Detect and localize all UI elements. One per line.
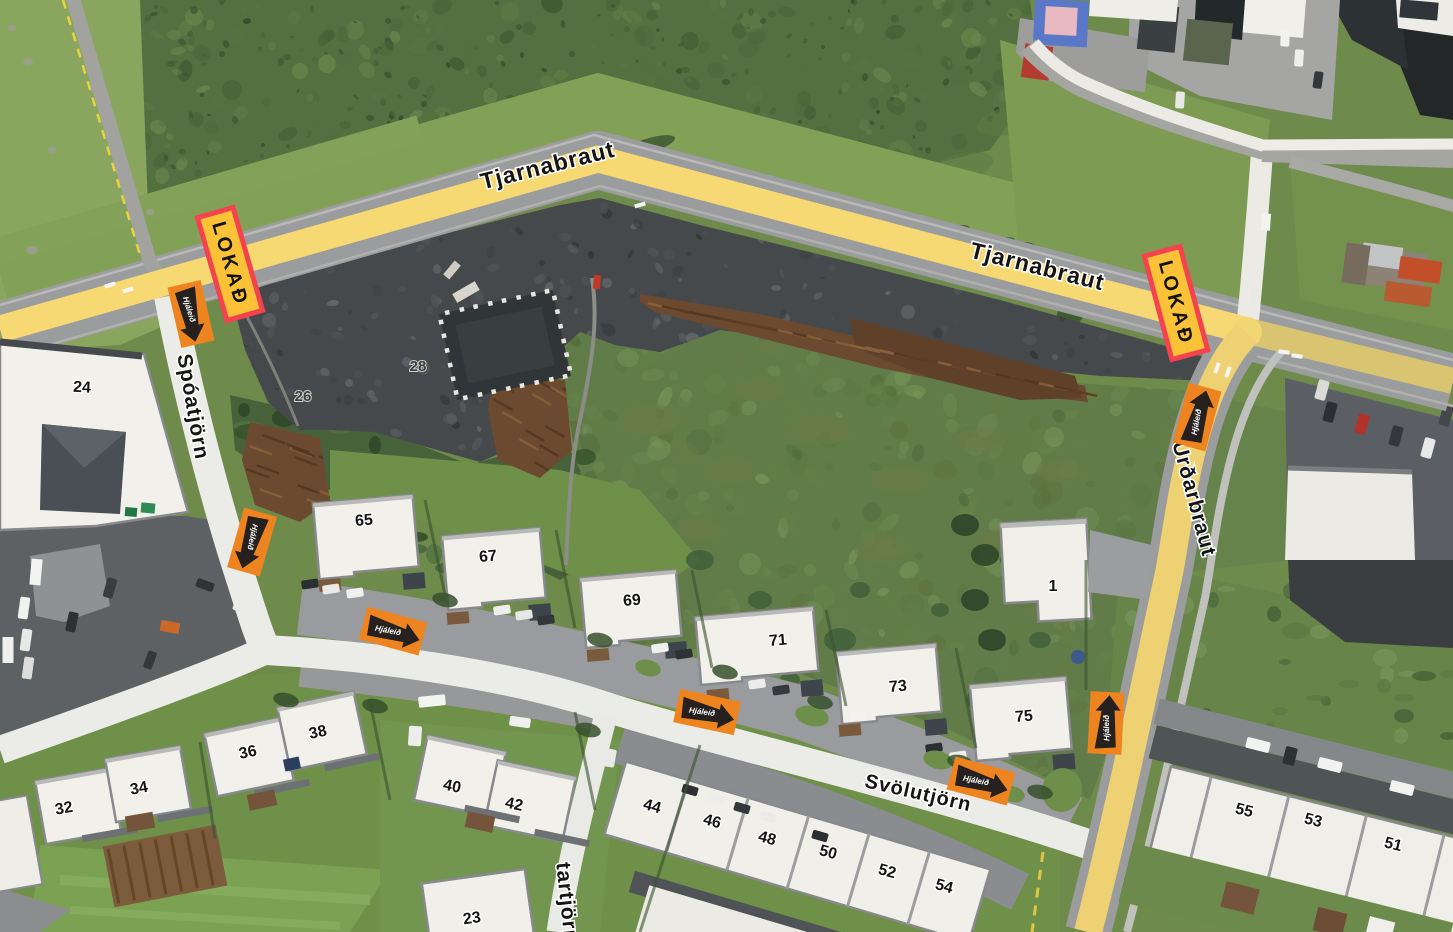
svg-text:23: 23 [462, 909, 482, 928]
svg-text:32: 32 [54, 799, 75, 819]
svg-text:67: 67 [478, 547, 497, 566]
svg-text:38: 38 [307, 723, 328, 743]
svg-text:40: 40 [442, 777, 463, 797]
svg-text:69: 69 [622, 591, 641, 610]
svg-text:1: 1 [1049, 578, 1058, 595]
svg-text:73: 73 [888, 677, 907, 696]
svg-text:28: 28 [410, 358, 427, 375]
svg-text:26: 26 [295, 388, 312, 405]
svg-text:34: 34 [129, 779, 150, 799]
svg-text:75: 75 [1014, 707, 1033, 726]
svg-text:71: 71 [768, 631, 787, 650]
svg-text:36: 36 [237, 743, 258, 763]
svg-text:65: 65 [354, 511, 373, 530]
svg-text:24: 24 [73, 379, 92, 397]
svg-text:42: 42 [504, 795, 525, 815]
svg-text:Hjáleið: Hjáleið [1102, 715, 1111, 741]
